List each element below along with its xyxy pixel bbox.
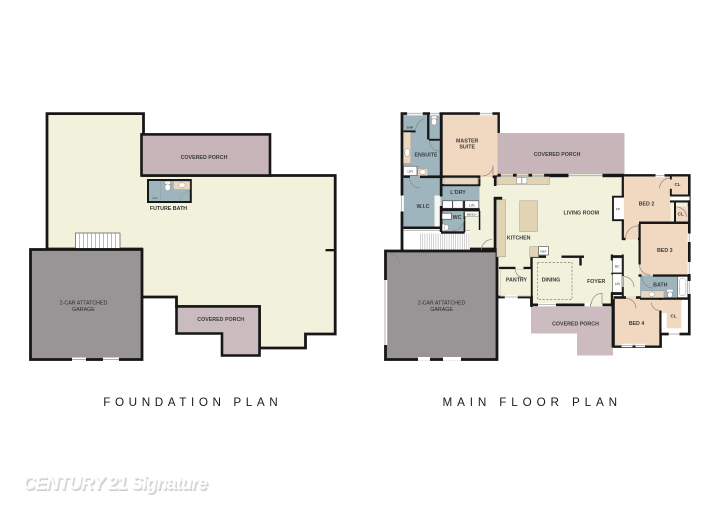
svg-text:WC: WC xyxy=(453,215,462,221)
svg-text:BATH: BATH xyxy=(653,283,667,289)
svg-text:FUTURE BATH: FUTURE BATH xyxy=(150,206,187,212)
svg-text:KITCHEN: KITCHEN xyxy=(507,235,531,241)
svg-text:BED 4: BED 4 xyxy=(629,321,645,327)
svg-text:FP: FP xyxy=(616,207,621,211)
svg-text:LIN: LIN xyxy=(469,203,475,207)
svg-text:COVERED PORCH: COVERED PORCH xyxy=(534,152,581,158)
svg-text:BC: BC xyxy=(615,264,620,268)
svg-text:FOYER: FOYER xyxy=(587,279,605,285)
svg-text:CL: CL xyxy=(674,182,680,187)
svg-text:COVERED PORCH: COVERED PORCH xyxy=(181,155,228,161)
svg-text:CL: CL xyxy=(670,314,676,319)
svg-text:GARAGE: GARAGE xyxy=(72,307,95,313)
svg-text:LIVING ROOM: LIVING ROOM xyxy=(563,211,599,217)
svg-text:GARAGE: GARAGE xyxy=(430,307,453,313)
svg-text:PANTRY: PANTRY xyxy=(506,278,528,284)
svg-text:BENCH: BENCH xyxy=(467,213,476,217)
svg-text:SHR: SHR xyxy=(152,196,158,200)
svg-text:W.I.C: W.I.C xyxy=(417,204,430,210)
svg-text:FOUNDATION PLAN: FOUNDATION PLAN xyxy=(103,396,278,409)
svg-text:MAIN FLOOR PLAN: MAIN FLOOR PLAN xyxy=(443,396,618,409)
svg-text:LIN: LIN xyxy=(615,282,621,286)
svg-text:REF: REF xyxy=(541,249,547,253)
svg-text:2-CAR ATTATCHED: 2-CAR ATTATCHED xyxy=(418,301,466,307)
svg-text:LIN: LIN xyxy=(408,169,414,173)
svg-text:SUITE: SUITE xyxy=(459,145,475,151)
svg-text:2-CAR ATTATCHED: 2-CAR ATTATCHED xyxy=(60,301,108,307)
svg-text:L'DRY: L'DRY xyxy=(450,190,466,196)
svg-text:CL: CL xyxy=(678,212,684,217)
svg-text:DINING: DINING xyxy=(542,278,561,284)
svg-text:MASTER: MASTER xyxy=(456,139,479,145)
svg-text:CENTURY 21 Signature: CENTURY 21 Signature xyxy=(23,473,208,493)
svg-text:SHR: SHR xyxy=(407,126,414,130)
svg-text:COVERED PORCH: COVERED PORCH xyxy=(197,317,244,323)
svg-text:BED 3: BED 3 xyxy=(657,248,673,254)
svg-text:COVERED PORCH: COVERED PORCH xyxy=(552,322,599,328)
svg-text:ENSUITE: ENSUITE xyxy=(415,152,438,158)
svg-text:BED 2: BED 2 xyxy=(639,201,655,207)
